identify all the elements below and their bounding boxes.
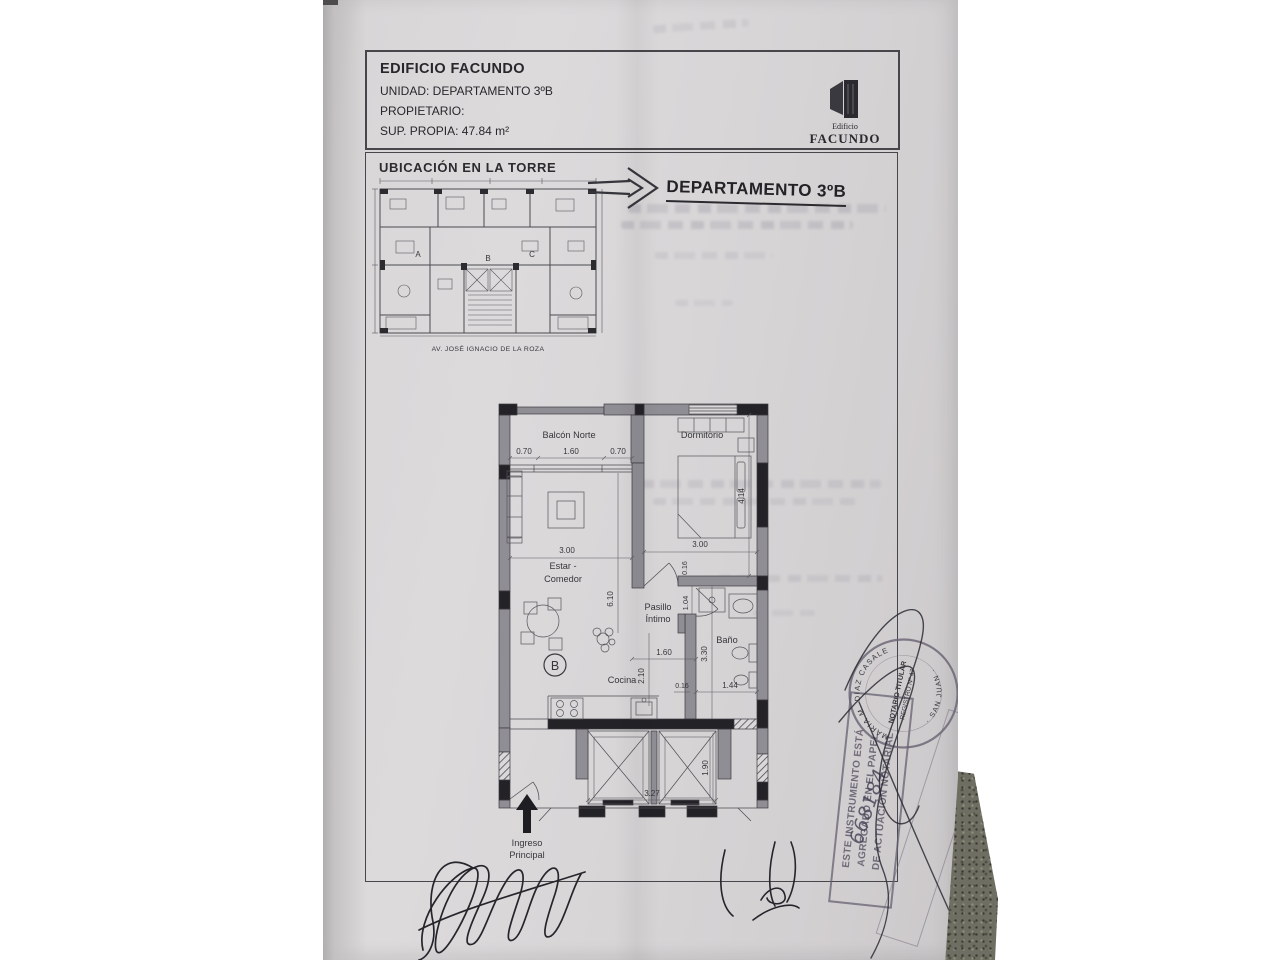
dim-balcony-left: 0.70 xyxy=(516,447,532,456)
logo-subtitle: Edificio xyxy=(806,122,884,131)
label-living-1: Estar - xyxy=(549,561,576,571)
location-title: UBICACIÓN EN LA TORRE xyxy=(379,160,556,175)
owner-line: PROPIETARIO: xyxy=(380,104,464,118)
dim-bedroom-width: 3.00 xyxy=(692,540,708,549)
dim-living-width: 3.00 xyxy=(559,546,575,555)
walls xyxy=(499,404,768,817)
plan-title: DEPARTAMENTO 3ºB xyxy=(666,177,846,207)
building-logo: Edificio FACUNDO xyxy=(806,78,884,147)
building-name: EDIFICIO FACUNDO xyxy=(380,61,525,77)
entry-arrow-icon xyxy=(516,794,538,833)
unit-letter: B xyxy=(551,659,559,673)
svg-text:· SAN JUAN ·: · SAN JUAN · xyxy=(918,665,949,726)
dim-hall-width: 1.04 xyxy=(681,596,690,611)
label-hall-1: Pasillo xyxy=(644,602,671,612)
label-entry-2: Principal xyxy=(509,850,544,860)
stove xyxy=(551,698,583,719)
dim-bath-width: 1.44 xyxy=(722,681,738,690)
unit-line: UNIDAD: DEPARTAMENTO 3ºB xyxy=(380,84,553,98)
coffee-table xyxy=(548,492,584,528)
tower-unit-c: C xyxy=(529,250,535,259)
tower-unit-a: A xyxy=(415,250,421,259)
screenshot-root: { "header": { "title": "EDIFICIO FACUNDO… xyxy=(0,0,1280,960)
tower-location-plan: A B C AV. JOSÉ IGNACIO DE LA ROZA xyxy=(372,175,608,367)
label-balcony: Balcón Norte xyxy=(542,430,595,440)
label-hall-2: Íntimo xyxy=(645,614,670,624)
dim-kitchen-height: 2.10 xyxy=(637,668,646,684)
bidet xyxy=(749,672,757,688)
dim-wall-small: 0.16 xyxy=(675,683,689,690)
dim-bath-height: 3.30 xyxy=(700,646,709,662)
page-corner-shadow xyxy=(323,0,338,5)
street-caption: AV. JOSÉ IGNACIO DE LA ROZA xyxy=(432,344,545,353)
area-line: SUP. PROPIA: 47.84 m² xyxy=(380,124,509,138)
apartment-floor-plan: 0.70 1.60 0.70 3.00 3.00 4.14 0.16 6.10 … xyxy=(491,396,779,871)
label-bedroom: Dormitorio xyxy=(681,430,723,440)
nightstand xyxy=(738,438,754,452)
bleed-through-handwriting xyxy=(653,19,749,34)
plan-sheet-box: UBICACIÓN EN LA TORRE xyxy=(365,152,898,882)
header-box: EDIFICIO FACUNDO UNIDAD: DEPARTAMENTO 3º… xyxy=(365,50,900,150)
label-kitchen: Cocina xyxy=(608,675,637,685)
label-entry-1: Ingreso xyxy=(512,838,543,848)
toilet xyxy=(749,644,757,662)
arrow-icon xyxy=(588,165,662,211)
label-living-2: Comedor xyxy=(544,574,582,584)
scanned-document-page: EDIFICIO FACUNDO UNIDAD: DEPARTAMENTO 3º… xyxy=(323,0,958,960)
notary-round-seal: MARIA M. DIAZ CASALE · SAN JUAN · NOTARI… xyxy=(835,625,977,764)
dim-elevator-depth: 1.90 xyxy=(701,760,710,776)
dim-kitchen-width: 1.60 xyxy=(656,648,672,657)
seal-bottom-arc: · SAN JUAN · xyxy=(918,665,949,726)
building-logo-icon xyxy=(827,78,863,120)
plant xyxy=(597,633,609,645)
label-bath: Baño xyxy=(716,635,737,645)
dim-elevator-width: 3.27 xyxy=(644,789,660,798)
dim-balcony-center: 1.60 xyxy=(563,447,579,456)
kitchen-sink xyxy=(631,698,657,719)
furniture xyxy=(507,418,757,719)
logo-name: FACUNDO xyxy=(806,131,884,147)
dim-living-height: 6.10 xyxy=(606,591,615,607)
dim-balcony-right: 0.70 xyxy=(610,447,626,456)
dim-bedroom-height: 4.14 xyxy=(737,488,746,504)
tower-unit-b: B xyxy=(485,254,490,263)
dim-wall-top: 0.16 xyxy=(682,561,689,575)
